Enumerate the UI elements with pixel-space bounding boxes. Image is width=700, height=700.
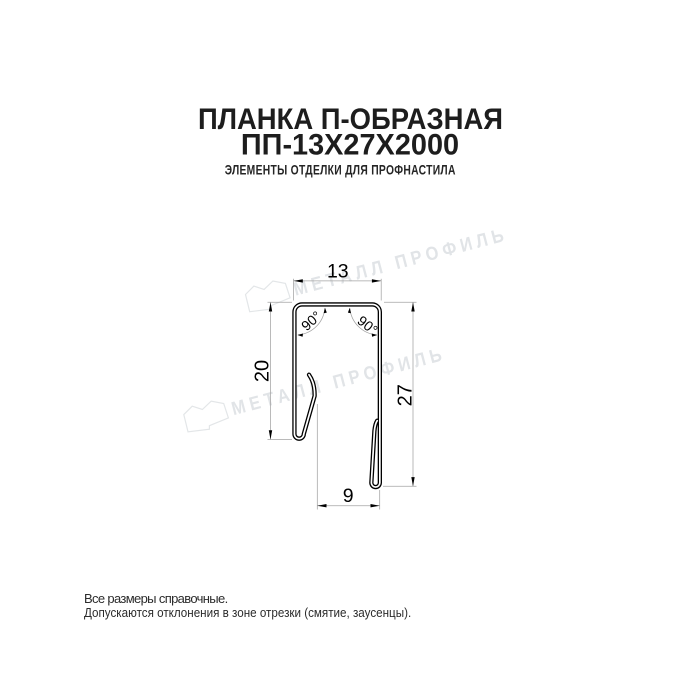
svg-text:Все размеры справочные.: Все размеры справочные. [84, 591, 228, 606]
svg-text:ПП-13Х27Х2000: ПП-13Х27Х2000 [241, 128, 459, 162]
svg-text:ЭЛЕМЕНТЫ ОТДЕЛКИ ДЛЯ ПРОФНАСТИ: ЭЛЕМЕНТЫ ОТДЕЛКИ ДЛЯ ПРОФНАСТИЛА [225, 162, 456, 178]
svg-text:20: 20 [252, 360, 274, 382]
svg-text:27: 27 [394, 384, 416, 406]
svg-text:13: 13 [327, 261, 349, 283]
svg-text:9: 9 [343, 485, 354, 507]
svg-text:Допускаются отклонения в зоне: Допускаются отклонения в зоне отрезки (с… [84, 605, 411, 620]
